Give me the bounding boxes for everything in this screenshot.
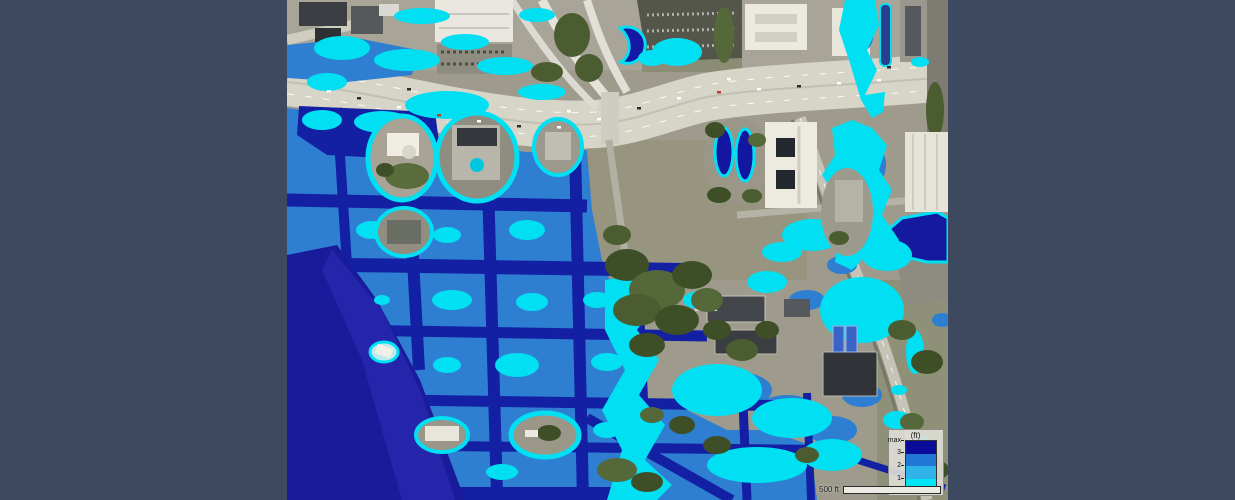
building <box>545 132 571 160</box>
apartment-block <box>823 352 877 396</box>
building <box>387 220 421 244</box>
building <box>425 426 459 441</box>
legend-tick-1: 1 <box>897 475 904 482</box>
tennis-court <box>846 326 857 352</box>
legend-band-deep <box>906 441 936 454</box>
office-courtyard-building <box>765 122 817 208</box>
building <box>351 6 383 34</box>
overpass <box>601 92 619 144</box>
office-building <box>745 4 807 50</box>
scale-bar-rule <box>843 486 941 494</box>
map-scale-bar: 500 ft <box>819 485 941 494</box>
legend-tick-max: max <box>888 437 904 444</box>
scale-bar-label: 500 ft <box>819 485 839 494</box>
building <box>835 180 863 222</box>
building <box>784 299 810 317</box>
tower <box>880 4 891 66</box>
legend-tick-2: 2 <box>897 462 904 469</box>
satellite-flood-map-canvas <box>287 0 948 500</box>
flood-map: (ft) max 3 2 1 0 500 ft <box>287 0 948 500</box>
letterboxed-slide: (ft) max 3 2 1 0 500 ft <box>0 0 1235 500</box>
legend-tick-3: 3 <box>897 449 904 456</box>
tennis-court <box>833 326 844 352</box>
building <box>299 2 347 26</box>
legend-band-shallow <box>906 466 936 479</box>
warehouse <box>905 132 948 212</box>
legend-band-medium <box>906 454 936 467</box>
